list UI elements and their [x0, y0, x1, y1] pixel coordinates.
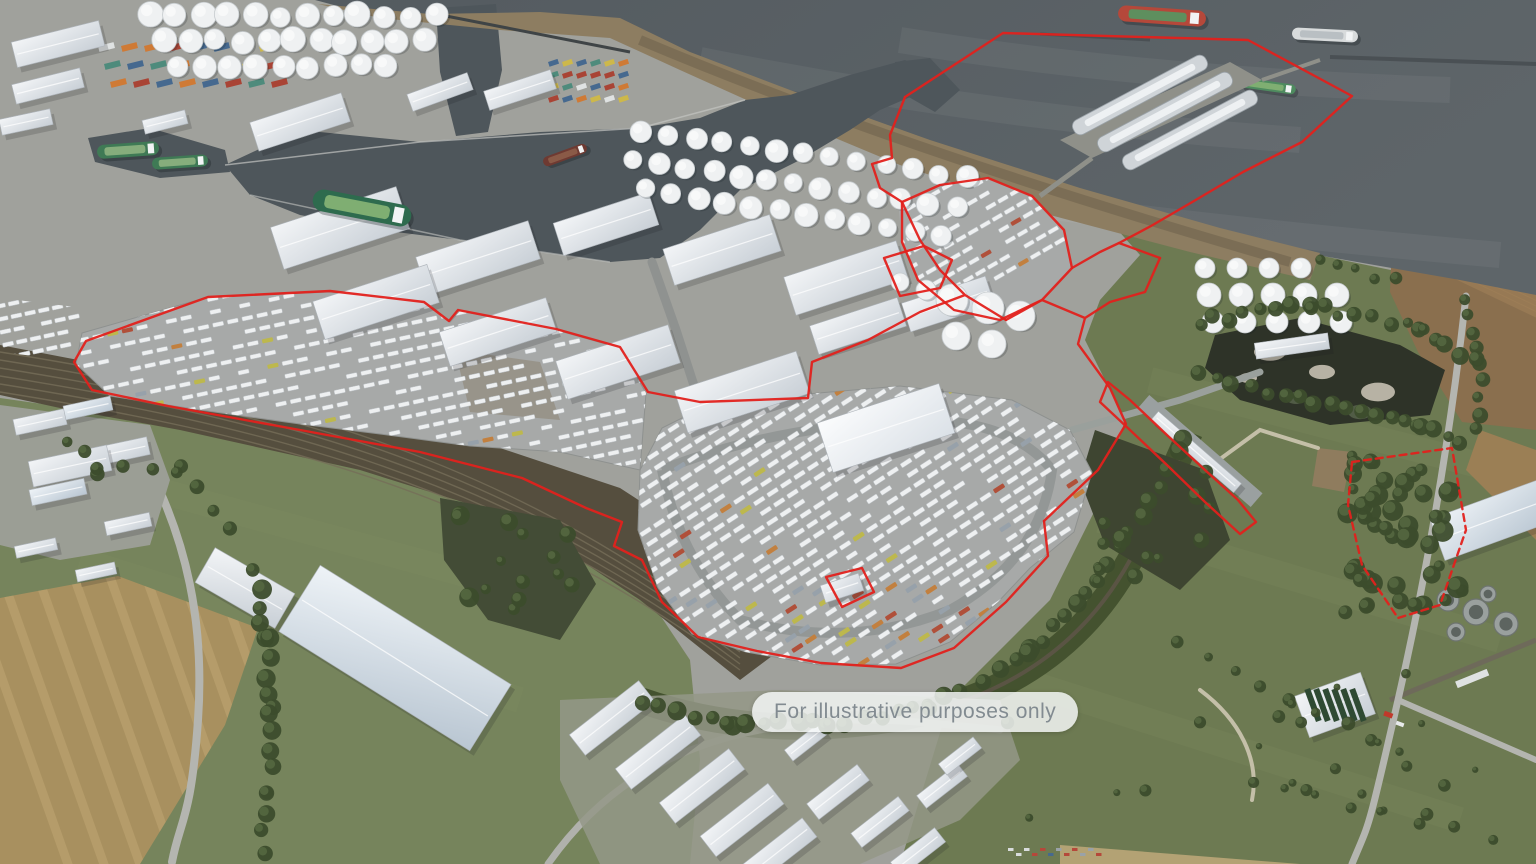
- illustrative-caption: For illustrative purposes only: [752, 692, 1078, 732]
- illustrative-caption-text: For illustrative purposes only: [774, 700, 1056, 723]
- aerial-render-canvas: [0, 0, 1536, 864]
- aerial-site-render: For illustrative purposes only: [0, 0, 1536, 864]
